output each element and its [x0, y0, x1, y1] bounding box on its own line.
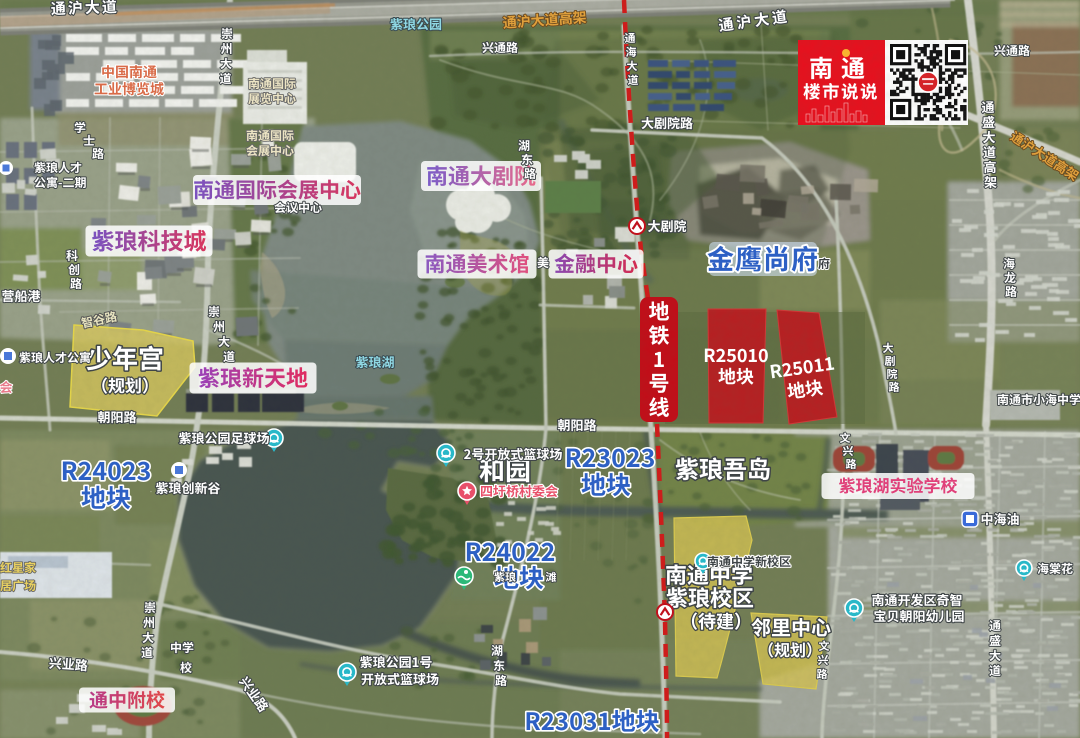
svg-text:通沪大道: 通沪大道: [50, 0, 119, 19]
svg-text:2号开放式篮球场: 2号开放式篮球场: [464, 444, 563, 463]
svg-text:大剧院路: 大剧院路: [641, 113, 693, 132]
svg-text:中学: 中学: [170, 639, 194, 656]
svg-text:路: 路: [889, 379, 900, 395]
svg-text:营船港: 营船港: [1, 286, 40, 305]
svg-text:金融中心: 金融中心: [554, 249, 638, 279]
svg-text:朝阳路: 朝阳路: [557, 415, 596, 434]
svg-text:南通大剧院: 南通大剧院: [426, 159, 536, 191]
svg-text:滩: 滩: [546, 569, 557, 585]
svg-text:紫琅人才公寓: 紫琅人才公寓: [19, 349, 91, 366]
svg-text:会议中心: 会议中心: [274, 199, 322, 216]
svg-text:工业博览城: 工业博览城: [94, 79, 164, 99]
svg-text:兴业路: 兴业路: [48, 653, 88, 675]
svg-text:红星家: 红星家: [0, 559, 36, 576]
svg-text:地块: 地块: [581, 466, 631, 502]
svg-text:会: 会: [0, 377, 13, 396]
svg-text:（待建）: （待建）: [680, 608, 752, 634]
svg-text:南通市小海中学: 南通市小海中学: [997, 391, 1080, 408]
svg-text:（规划）: （规划）: [758, 637, 822, 661]
svg-text:兴通路: 兴通路: [482, 39, 518, 56]
svg-text:大剧院: 大剧院: [647, 216, 686, 235]
svg-text:路: 路: [70, 275, 82, 292]
svg-text:金鹰尚府: 金鹰尚府: [707, 238, 819, 277]
svg-text:南通中学新校区: 南通中学新校区: [707, 553, 791, 570]
svg-text:紫琅新天地: 紫琅新天地: [198, 361, 308, 393]
svg-text:兴通路: 兴通路: [994, 42, 1030, 59]
svg-text:朝阳路: 朝阳路: [97, 407, 136, 426]
svg-text:紫琅吾岛: 紫琅吾岛: [675, 450, 771, 485]
svg-text:居广场: 居广场: [0, 577, 36, 594]
svg-text:会展中心: 会展中心: [246, 142, 294, 159]
svg-text:谷: 谷: [151, 491, 152, 493]
svg-text:道: 道: [219, 70, 231, 87]
svg-text:地块: 地块: [785, 374, 824, 405]
svg-text:宝贝朝阳幼儿园: 宝贝朝阳幼儿园: [873, 606, 964, 625]
svg-text:路: 路: [524, 165, 536, 182]
svg-text:少年宫: 少年宫: [86, 339, 164, 376]
svg-text:四圩桥村委会: 四圩桥村委会: [480, 481, 558, 500]
svg-text:道: 道: [141, 644, 153, 661]
svg-text:紫琅科技城: 紫琅科技城: [92, 222, 207, 256]
svg-text:紫琅公园足球场: 紫琅公园足球场: [178, 428, 269, 447]
svg-text:美: 美: [537, 254, 549, 271]
svg-text:路: 路: [817, 666, 828, 682]
svg-text:道: 道: [989, 662, 1001, 679]
svg-text:楼市说说: 楼市说说: [803, 79, 879, 104]
svg-text:紫琅湖: 紫琅湖: [355, 352, 394, 371]
svg-text:开放式篮球场: 开放式篮球场: [361, 669, 439, 688]
svg-text:校: 校: [180, 659, 192, 676]
svg-text:地块: 地块: [81, 479, 131, 515]
svg-text:通中附校: 通中附校: [89, 686, 165, 713]
svg-text:路: 路: [92, 145, 104, 162]
svg-text:（规划）: （规划）: [91, 372, 159, 397]
svg-text:展览中心: 展览中心: [248, 90, 296, 107]
svg-text:府: 府: [818, 255, 830, 272]
svg-text:路: 路: [1005, 283, 1017, 300]
svg-text:道: 道: [223, 348, 235, 365]
svg-text:架: 架: [984, 172, 997, 191]
svg-text:公寓-二期: 公寓-二期: [34, 174, 86, 191]
svg-text:R23031地块: R23031地块: [524, 702, 659, 737]
svg-text:中海油: 中海油: [980, 509, 1019, 528]
svg-text:路: 路: [495, 672, 507, 689]
svg-text:紫琅: 紫琅: [494, 569, 516, 585]
svg-text:紫琅湖实验学校: 紫琅湖实验学校: [839, 472, 958, 497]
svg-text:紫琅公园: 紫琅公园: [390, 14, 442, 33]
svg-text:线: 线: [649, 392, 670, 422]
svg-text:紫琅创新谷: 紫琅创新谷: [155, 478, 220, 497]
svg-text:地块: 地块: [718, 363, 754, 389]
svg-text:海棠花: 海棠花: [1037, 560, 1073, 577]
svg-text:南通美术馆: 南通美术馆: [425, 249, 530, 279]
svg-text:道: 道: [628, 72, 639, 88]
svg-text:路: 路: [846, 456, 857, 472]
